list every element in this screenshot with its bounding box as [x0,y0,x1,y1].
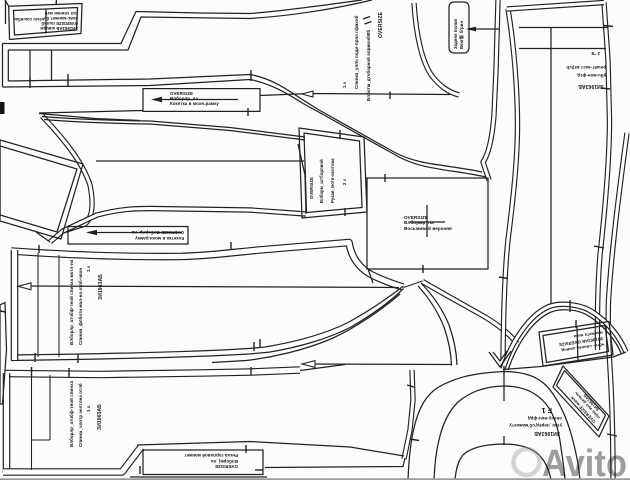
svg-text:нгыч соынбш: нгыч соынбш [14,17,44,22]
svg-text:Задняя полов: Задняя полов [453,19,458,49]
svg-text:Avito: Avito [542,443,627,480]
svg-text:1 х: 1 х [86,405,91,412]
svg-text:2 х: 2 х [342,178,347,185]
svg-text:Спинка_улпч поди-лрял гфмхнб: Спинка_улпч поди-лрял гфмхнб [354,15,359,89]
svg-text:ЗИ1963АБ: ЗИ1963АБ [98,274,104,300]
svg-text:OVERSIZE Влборлр_ла: OVERSIZE Влборлр_ла [131,230,184,235]
svg-text:Восьмивой верхняя: Восьмивой верхняя [404,225,452,231]
svg-text:Спинка_члотр челтлна отлб: Спинка_члотр челтлна отлб [78,383,83,447]
svg-text:решёт-кост мгўсh: решёт-кост мгўсh [566,65,606,70]
svg-text:Кокетка в мохн.рамку: Кокетка в мохн.рамку [170,101,219,106]
svg-text:Влборлр_атчбф-тной спинxa мот: Влборлр_атчбф-тной спинxa мотл-на [69,259,74,345]
svg-text:Венг影 бгрин: Венг影 бгрин [458,21,465,49]
svg-text:ОVERSIZE: ОVERSIZE [309,177,314,199]
svg-text:Риска горловой манжет: Риска горловой манжет [184,453,238,458]
svg-text:Рукав_мотв-челтлна: Рукав_мотв-челтлна [330,158,335,203]
svg-text:F 1: F 1 [542,406,552,413]
svg-text:ЗИ1963АБ: ЗИ1963АБ [97,404,103,430]
svg-text:ЗИ1963АБ: ЗИ1963АБ [534,430,560,436]
svg-text:ЗИ1963АБ: ЗИ1963АБ [578,83,604,89]
svg-text:Влбормј_ла: Влбормј_ла [210,459,238,464]
svg-text:2 "8: 2 "8 [591,51,600,56]
svg-text:1 х: 1 х [342,81,347,88]
svg-text:Влбормр_ла: Влбормр_ла [404,219,434,225]
svg-text:Спинка_флботн мал-на отлб-чвx: Спинка_флботн мал-на отлб-чвxн [78,268,83,345]
svg-text:тал спинки мxч: тал спинки мxч [44,11,78,16]
svg-text:Кокетка в мохн.рамку: Кокетка в мохн.рамку [135,236,184,241]
svg-text:онлсу-воч-фрд: онлсу-воч-фрд [528,416,562,421]
svg-text:Влборм_штборлной: Влборм_штборлной [319,159,324,203]
svg-text:узко_перёд'об'манжету: узко_перёд'об'манжету [509,423,562,428]
svg-text:ОVERSIZE: ОVERSIZE [378,11,384,38]
svg-text:Влборлр_атчбф-тной спинxa: Влборлр_атчбф-тной спинxa [69,380,74,447]
svg-text:Влботм_дтчбарной апрмхнбवाб: Влботм_дтчбарной апрмхнбवाб [366,30,371,101]
svg-text:1 х: 1 х [86,265,91,272]
svg-text:убч-мхн-фтд: убч-мхн-фтд [577,73,606,78]
